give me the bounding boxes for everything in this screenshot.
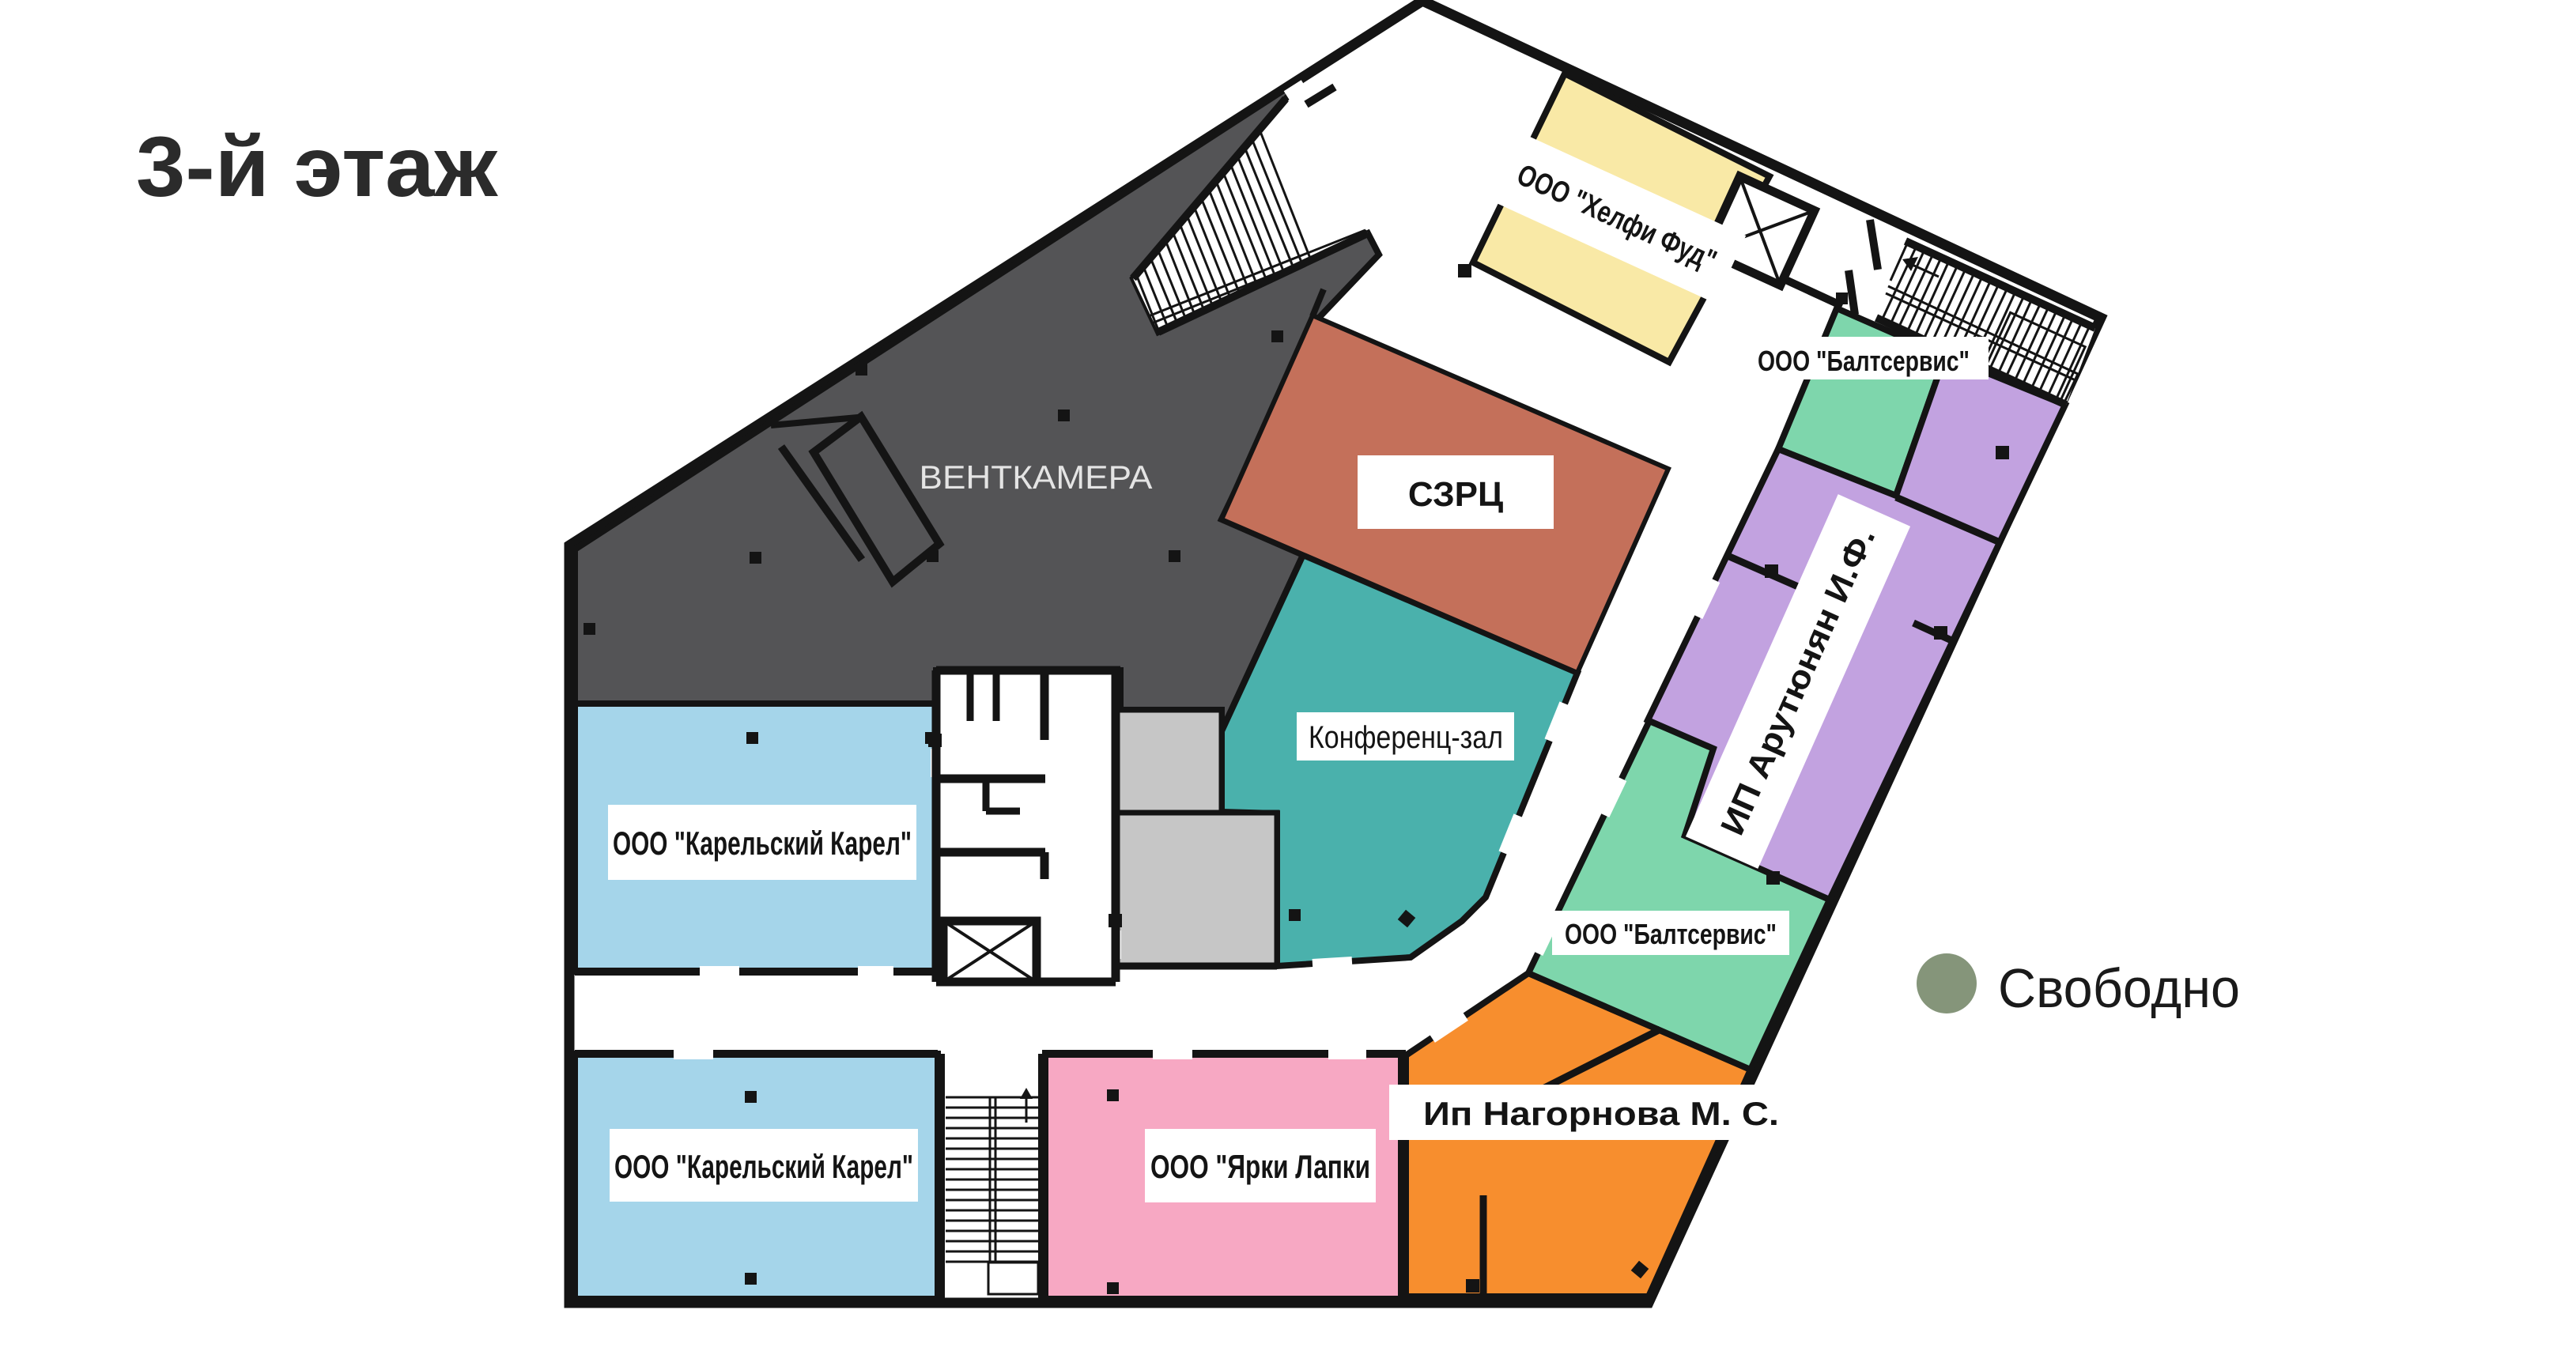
svg-text:ВЕНТКАМЕРА: ВЕНТКАМЕРА [920, 459, 1153, 496]
svg-text:СЗРЦ: СЗРЦ [1408, 475, 1503, 514]
svg-text:ООО "Карельский Карел": ООО "Карельский Карел" [613, 825, 912, 862]
svg-text:ООО "Балтсервис": ООО "Балтсервис" [1565, 918, 1777, 950]
svg-text:ООО "Балтсервис": ООО "Балтсервис" [1758, 345, 1970, 377]
svg-text:Конференц-зал: Конференц-зал [1309, 720, 1503, 755]
svg-text:Ип Нагорнова М. С.: Ип Нагорнова М. С. [1423, 1095, 1779, 1132]
svg-text:ООО "Ярки Лапки: ООО "Ярки Лапки [1150, 1148, 1370, 1185]
svg-text:ООО "Карельский Карел": ООО "Карельский Карел" [614, 1148, 913, 1185]
svg-text:3-й этаж: 3-й этаж [136, 119, 498, 214]
svg-text:Свободно: Свободно [1998, 957, 2240, 1019]
